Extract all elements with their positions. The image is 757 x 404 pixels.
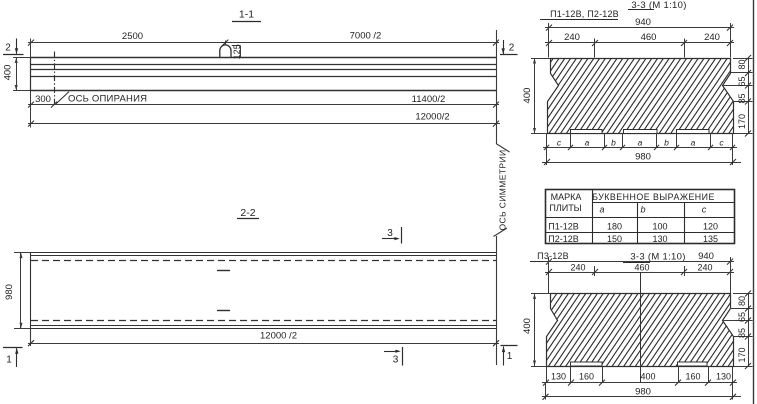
svg-text:160: 160 [579,372,594,382]
svg-text:240: 240 [704,32,720,43]
svg-text:МАРКА: МАРКА [551,192,582,202]
svg-text:980: 980 [4,284,15,300]
svg-text:b: b [611,138,616,148]
svg-text:12000 /2: 12000 /2 [260,331,297,342]
svg-text:120: 120 [703,221,718,231]
svg-text:80: 80 [737,296,747,306]
svg-text:7000 /2: 7000 /2 [350,31,382,42]
svg-text:100: 100 [652,221,667,231]
svg-text:2-2: 2-2 [240,207,255,219]
svg-text:460: 460 [634,263,649,273]
svg-text:150: 150 [607,234,622,244]
svg-text:940: 940 [635,17,651,28]
svg-text:a: a [638,138,643,148]
svg-text:170: 170 [737,114,747,129]
svg-text:130: 130 [716,372,731,382]
svg-text:b: b [640,205,645,215]
svg-text:П1-12В, П2-12В: П1-12В, П2-12В [550,9,619,19]
svg-text:400: 400 [522,88,533,104]
svg-text:1-1: 1-1 [239,9,254,21]
svg-text:11400/2: 11400/2 [412,94,446,105]
svg-text:2: 2 [509,42,515,53]
svg-text:12000/2: 12000/2 [415,112,449,123]
svg-text:2500: 2500 [122,31,143,42]
svg-text:3: 3 [393,355,399,366]
svg-text:П3-12В: П3-12В [537,251,569,261]
svg-text:1: 1 [507,351,513,362]
svg-text:130: 130 [551,372,566,382]
svg-text:b: b [664,138,669,148]
svg-text:125: 125 [232,44,242,59]
svg-text:85: 85 [737,328,747,338]
svg-text:65: 65 [737,76,747,86]
svg-text:240: 240 [697,263,712,273]
svg-text:65: 65 [737,312,747,322]
svg-text:300: 300 [35,94,51,105]
svg-text:940: 940 [698,251,714,262]
svg-text:400: 400 [640,372,655,382]
svg-text:240: 240 [570,263,585,273]
svg-text:П2-12В: П2-12В [548,234,579,244]
svg-text:80: 80 [737,59,747,69]
svg-text:400: 400 [522,318,533,334]
svg-text:460: 460 [641,32,657,43]
svg-text:a: a [691,138,696,148]
svg-text:180: 180 [607,221,622,231]
svg-text:ОСЬ ОПИРАНИЯ: ОСЬ ОПИРАНИЯ [68,93,147,104]
svg-text:400: 400 [3,65,14,81]
svg-text:170: 170 [737,347,747,362]
svg-text:160: 160 [685,372,700,382]
svg-text:ПЛИТЫ: ПЛИТЫ [549,203,581,213]
svg-text:a: a [585,138,590,148]
svg-text:1: 1 [6,355,12,366]
svg-text:c: c [557,138,562,148]
svg-text:3: 3 [387,228,393,239]
svg-text:c: c [702,205,707,215]
svg-text:130: 130 [652,234,667,244]
svg-text:a: a [599,205,604,215]
svg-text:ОСЬ СИММЕТРИИ: ОСЬ СИММЕТРИИ [498,149,508,230]
svg-text:БУКВЕННОЕ ВЫРАЖЕНИЕ: БУКВЕННОЕ ВЫРАЖЕНИЕ [592,192,715,202]
svg-text:980: 980 [635,152,651,163]
svg-text:240: 240 [564,32,580,43]
svg-text:П1-12В: П1-12В [548,221,579,231]
svg-text:85: 85 [737,93,747,103]
svg-text:c: c [719,138,724,148]
svg-text:980: 980 [635,387,651,398]
svg-text:135: 135 [703,234,718,244]
svg-text:2: 2 [5,43,11,54]
svg-text:3-3 (М 1:10): 3-3 (М 1:10) [630,252,685,263]
